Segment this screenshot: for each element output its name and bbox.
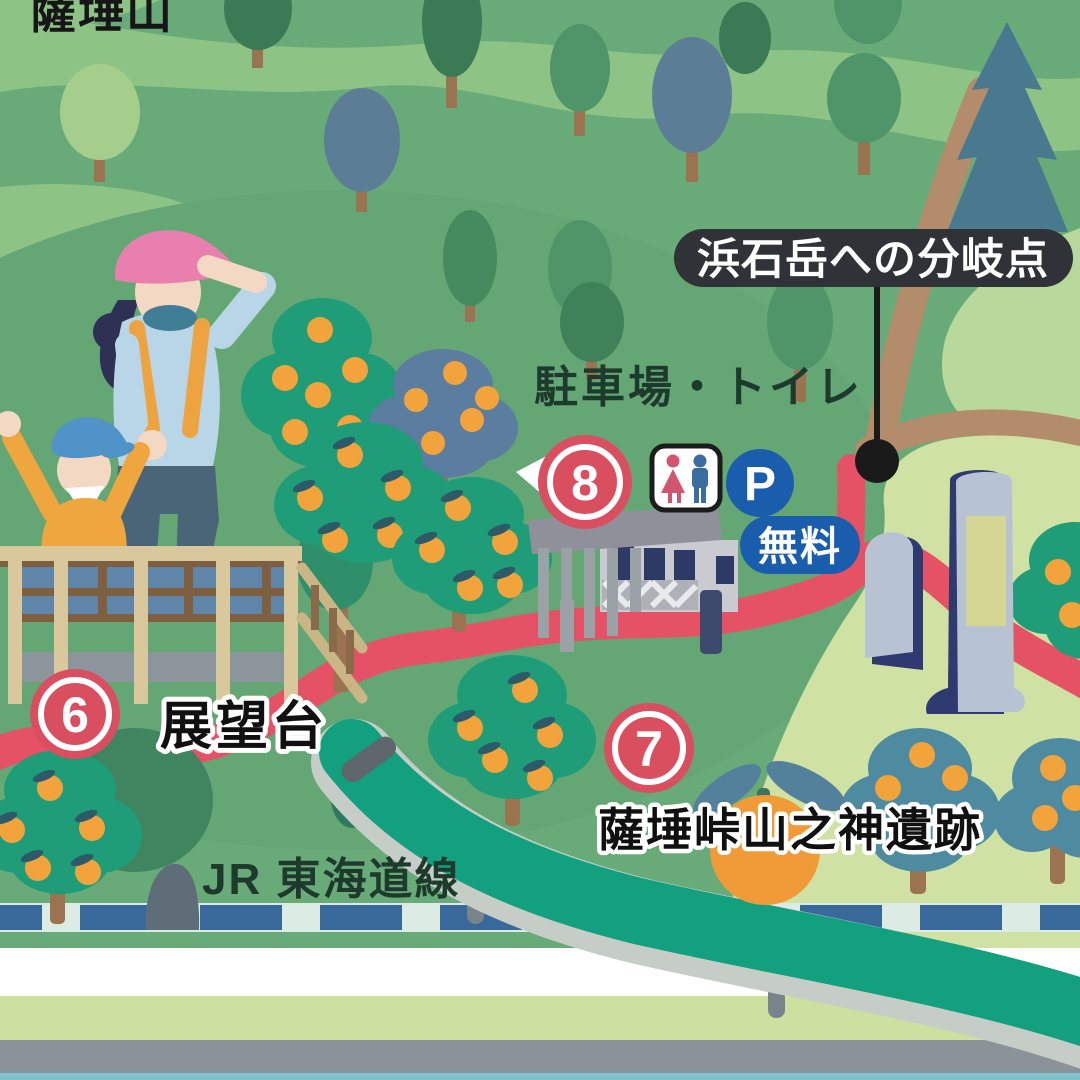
toilet-icon (652, 446, 720, 510)
parking-toilet-label: 駐車場・トイレ (534, 363, 863, 412)
marker-number: 8 (571, 455, 599, 511)
callout-line (874, 282, 880, 452)
mountain-name-label: 薩埵山 (30, 0, 174, 38)
free-parking-badge: 無料 (740, 516, 860, 574)
parking-letter: P (744, 458, 776, 511)
marker-number: 7 (635, 721, 663, 777)
parking-icon: P (726, 449, 794, 517)
junction-label: 浜石岳への分岐点 (697, 236, 1049, 284)
map-canvas: 薩埵山 駐車場・トイレ JR 東海道線 6 展望台 7 薩埵峠山之神遺跡 8 (0, 0, 1080, 1080)
free-badge-label: 無料 (758, 525, 842, 569)
ruins-label: 薩埵峠山之神遺跡 (598, 804, 982, 856)
gray-road-strip (0, 1040, 1080, 1074)
junction-dot (855, 439, 899, 483)
small-stele (865, 532, 923, 670)
sea-strip (0, 1073, 1080, 1080)
tree (719, 2, 771, 74)
map-marker-6: 6 (30, 669, 120, 759)
map-marker-7: 7 (604, 703, 694, 793)
railway-line-label: JR 東海道線 (202, 855, 460, 904)
marker-number: 6 (61, 687, 89, 743)
viewpoint-label: 展望台 (160, 698, 328, 756)
satta-pass-illustrated-map: 薩埵山 駐車場・トイレ JR 東海道線 6 展望台 7 薩埵峠山之神遺跡 8 (0, 0, 1080, 1080)
